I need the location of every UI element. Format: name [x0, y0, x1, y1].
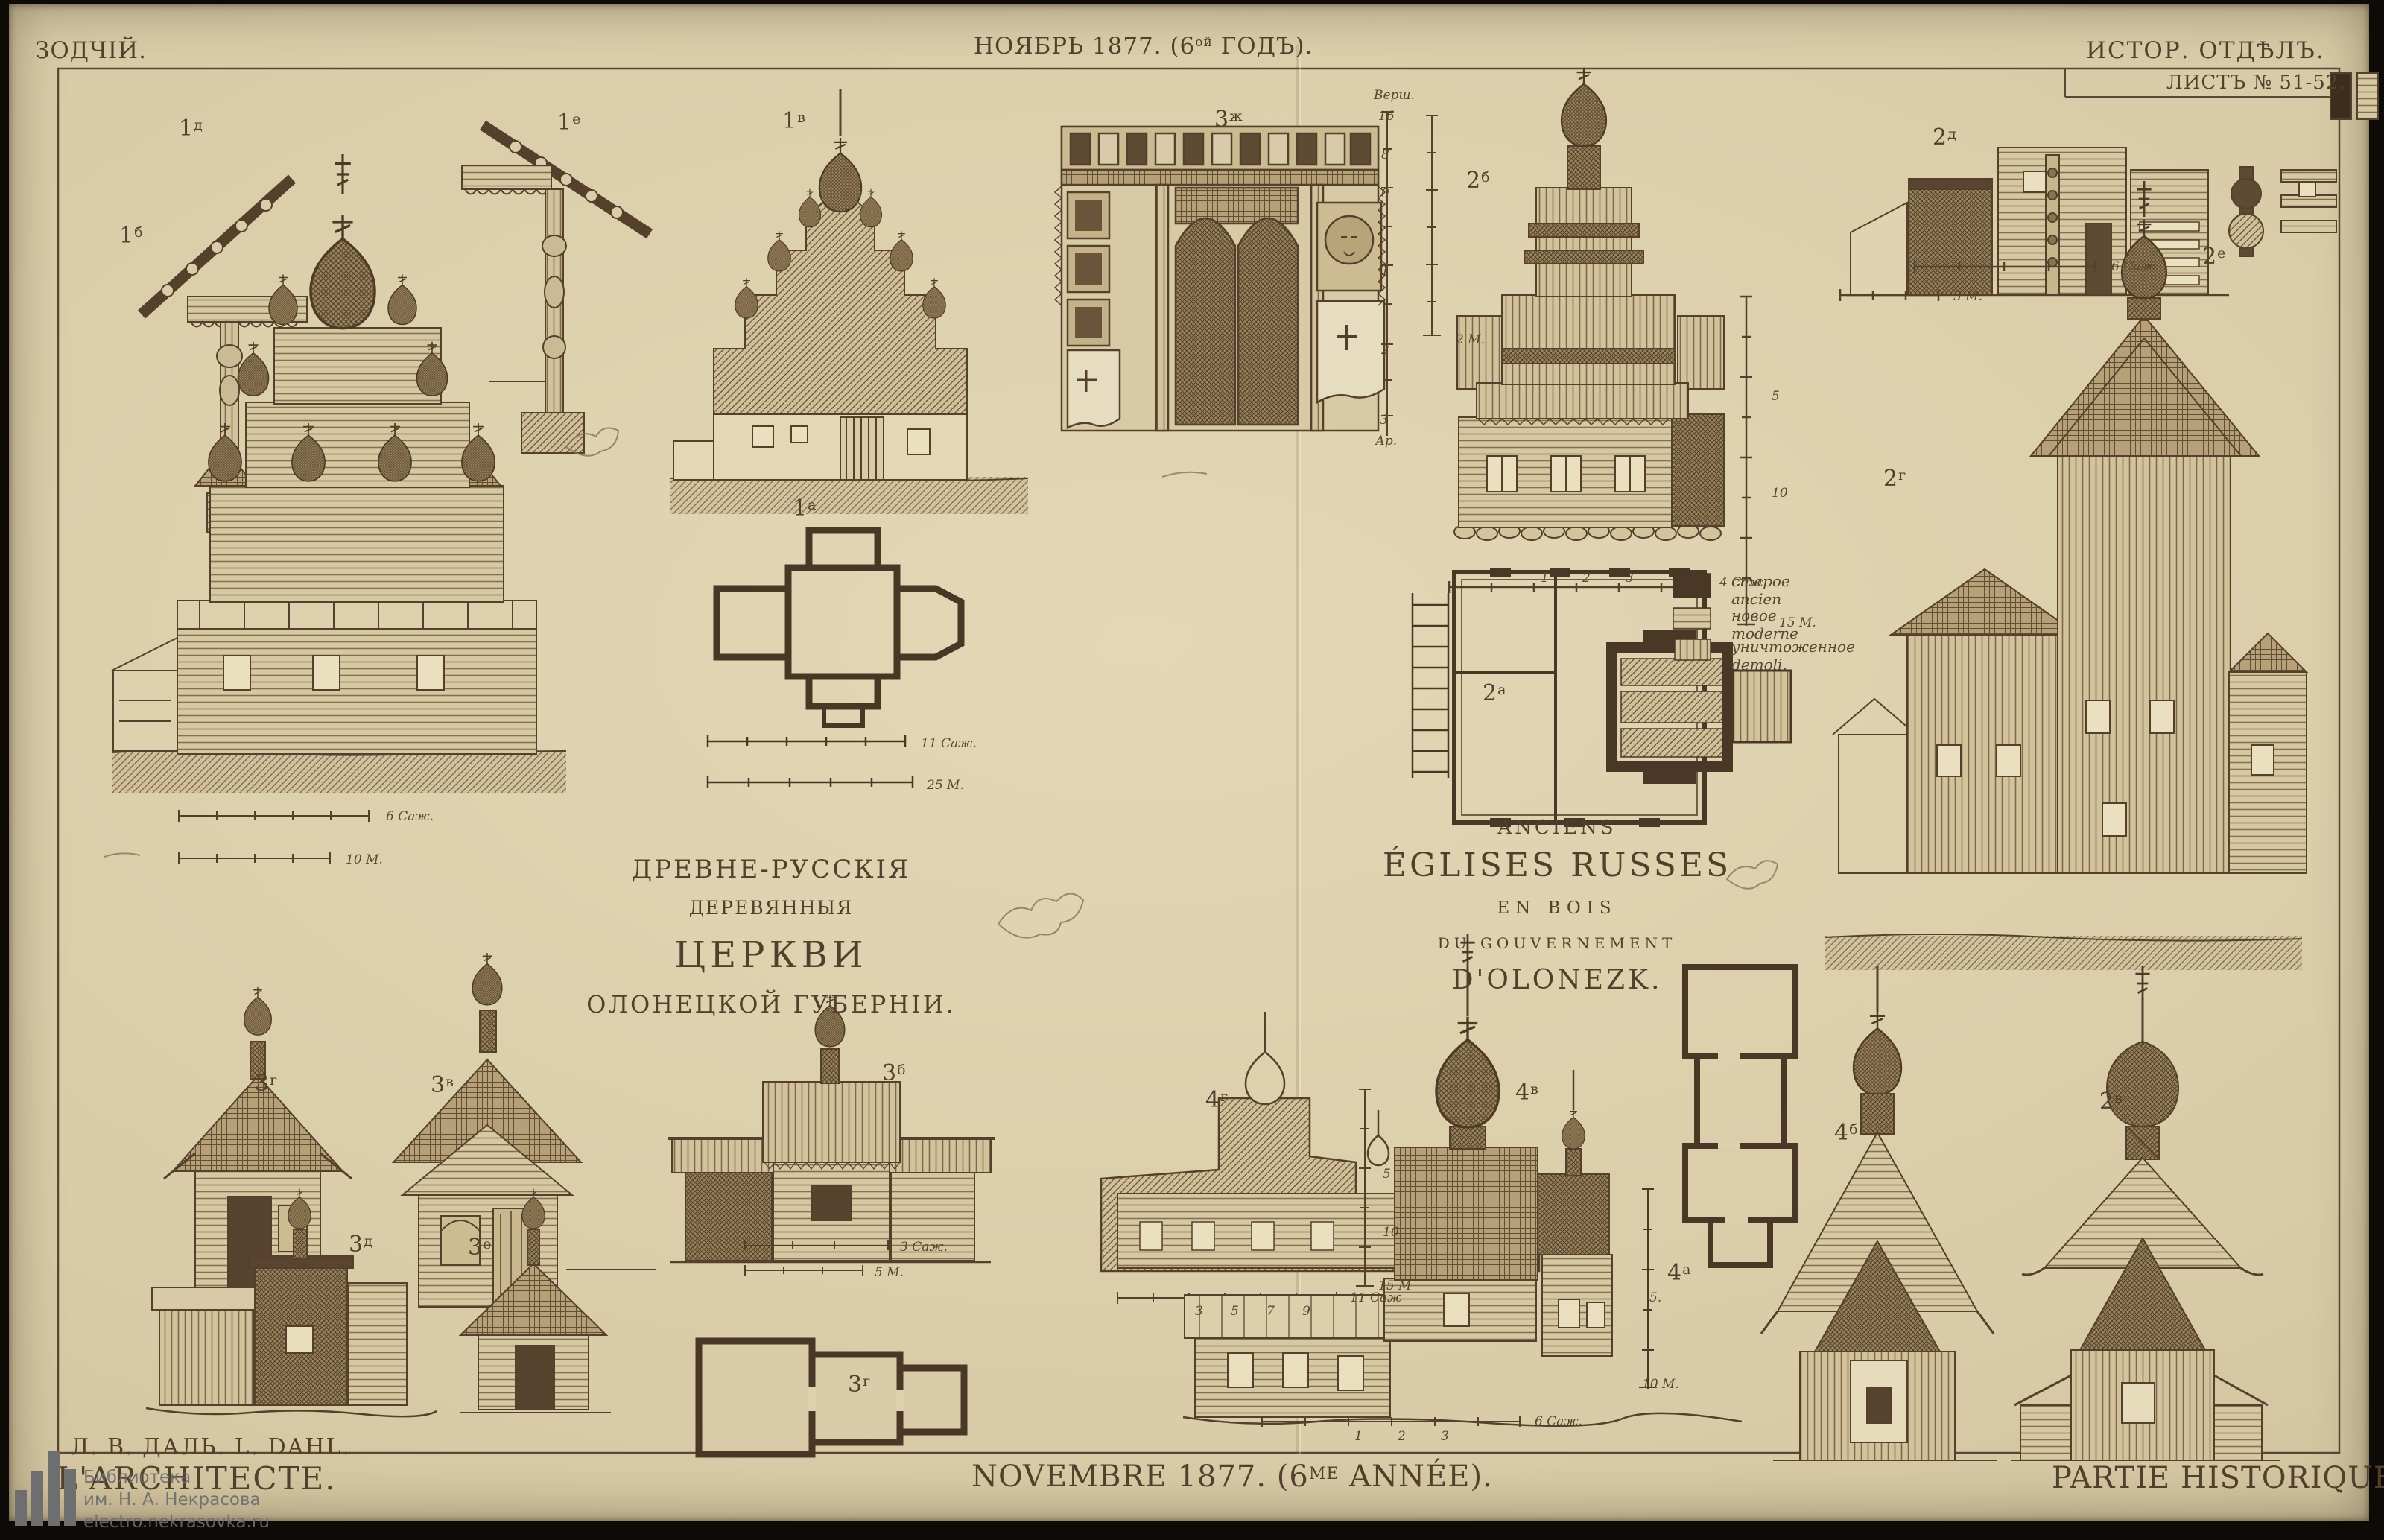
scale-label: 5 М. [1953, 291, 1982, 303]
masthead-title: ЗОДЧІЙ. [35, 39, 147, 63]
figure-label-num: 3 [848, 1372, 863, 1398]
scale-label: 2 М. [1456, 334, 1485, 346]
scale-label: 3 Саж. [900, 1241, 948, 1254]
legend-item-old-fr: ancien [1731, 592, 1781, 606]
figure-label-sup: б [897, 1062, 906, 1078]
figure-label-3e: 3е [468, 1237, 492, 1259]
plate-artwork [0, 0, 2384, 1540]
figure-label-sup: б [1481, 169, 1490, 186]
scale-bars-1b [179, 810, 369, 864]
scale-label: 15 М. [1779, 617, 1816, 630]
figure-label-num: 2 [2099, 1089, 2114, 1115]
fig-4a-plan [1639, 967, 1795, 1389]
scale-tick: 3 [1195, 1305, 1203, 1318]
figure-label-num: 4 [1205, 1087, 1220, 1113]
watermark-line1: Библиотека [83, 1469, 191, 1486]
footer-issue-fr: NOVEMBRE 1877. (6ME ANNÉE). [971, 1462, 1493, 1492]
figure-label-num: 4 [1515, 1080, 1530, 1106]
title-fr-line5: D'OLONEZK. [1452, 967, 1663, 994]
scale-label: 10 М. [1642, 1378, 1679, 1391]
figure-label-2d: 2д [1933, 127, 1957, 149]
scale-label: 5 [1772, 390, 1780, 403]
legend-item-new-ru: новое [1731, 608, 1777, 623]
figure-label-3b: 3б [882, 1062, 907, 1085]
figure-label-1b: 1б [119, 225, 144, 247]
figure-label-num: 2 [1883, 466, 1898, 492]
scale-tick: 1 [1354, 1430, 1363, 1443]
scale-tick: 5 [1231, 1305, 1239, 1318]
scale-tick: 3 [1626, 572, 1634, 585]
figure-label-sup: д [194, 117, 203, 133]
scale-label: 5. [1649, 1292, 1661, 1305]
title-fr-line2: ÉGLISES RUSSES [1383, 849, 1731, 882]
legend-item-demolished-fr: demoli. [1731, 657, 1787, 672]
figure-label-sup: в [1530, 1081, 1539, 1097]
figure-label-num: 2 [2202, 244, 2217, 270]
title-ru-line1: ДРЕВНЕ-РУССКІЯ [632, 857, 911, 882]
scale-label: 3 [1380, 414, 1388, 427]
scale-tick: 7 [1266, 1305, 1275, 1318]
scale-label: 16 [1378, 110, 1395, 123]
figure-label-sup: г [1898, 467, 1906, 484]
scale-label: Ар. [1375, 435, 1397, 448]
figure-label-num: 2 [1466, 168, 1481, 194]
figure-label-sup: е [572, 111, 581, 127]
figure-label-num: 3 [255, 1071, 270, 1097]
fig-2b-church-elevation [1449, 68, 1755, 626]
figure-label-num: 3 [1214, 107, 1229, 133]
scale-tick: 3 [1441, 1430, 1449, 1443]
scale-tick: 2 [1582, 572, 1591, 585]
title-ru-line4: ОЛОНЕЦКОЙ ГУБЕРНІИ. [586, 992, 956, 1016]
scale-label: 6 Саж. [1535, 1416, 1582, 1428]
figure-label-num: 4 [1667, 1260, 1682, 1286]
scale-label: 10 М. [346, 854, 383, 866]
plate-paper: ЗОДЧІЙ. НОЯБРЬ 1877. (6ой ГОДЪ). ИСТОР. … [9, 4, 2369, 1521]
figure-label-2v: 2в [2099, 1091, 2123, 1113]
figure-label-sup: г [270, 1072, 278, 1089]
fig-1v-church-section [670, 89, 1028, 514]
figure-label-3g: 3г [255, 1073, 278, 1095]
legend-item-demolished-ru: уничтоженное [1731, 639, 1855, 654]
scale-label: 11 Саж. [921, 738, 977, 750]
header-issue-sup: ой [1195, 35, 1213, 50]
figure-label-sup: д [1947, 126, 1957, 142]
figure-label-3zh: 3ж [1214, 109, 1243, 131]
scale-label: 10 [1772, 487, 1788, 500]
figure-label-num: 2 [1933, 124, 1947, 150]
figure-label-sup: а [1497, 682, 1506, 698]
figure-label-num: 4 [1834, 1120, 1849, 1146]
figure-label-sup: б [1849, 1121, 1858, 1138]
fig-3d-church-elevation [146, 1188, 437, 1416]
figure-label-sup: е [2217, 245, 2226, 262]
figure-label-4b: 4б [1834, 1122, 1859, 1144]
figure-label-sup: г [863, 1373, 871, 1390]
fig-1e-carved-post [462, 125, 650, 453]
scale-label: 15 М [1378, 1280, 1411, 1293]
scale-label: 5 М. [875, 1267, 904, 1279]
figure-label-1e: 1е [557, 112, 581, 134]
footer-issue-post: ANNÉE). [1339, 1460, 1492, 1494]
figure-label-num: 1 [119, 223, 134, 249]
figure-label-3g-plan: 3г [848, 1374, 871, 1396]
figure-label-2g: 2г [1883, 468, 1906, 490]
header-issue-pre: НОЯБРЬ 1877. (6 [974, 33, 1195, 60]
legend-swatches [1673, 574, 1711, 660]
scale-label: 25 М. [927, 779, 964, 792]
title-fr-line1: ANCIENS [1497, 818, 1616, 837]
figure-label-4a: 4а [1667, 1262, 1691, 1284]
scale-label: 0 [1381, 188, 1389, 200]
scale-tick: 1 [1541, 572, 1549, 585]
sheet-number: ЛИСТЪ № 51-52. [2166, 73, 2346, 92]
scale-label: 4 Саж. [1719, 577, 1767, 589]
scanned-plate-page: ЗОДЧІЙ. НОЯБРЬ 1877. (6ой ГОДЪ). ИСТОР. … [0, 0, 2384, 1540]
footer-issue-sup: ME [1309, 1465, 1340, 1483]
title-fr-line4: DU GOUVERNEMENT [1438, 936, 1677, 951]
scale-tick: 2 [1398, 1430, 1406, 1443]
figure-label-sup: ж [1229, 108, 1243, 124]
fig-2v-tower-elevation [2011, 966, 2280, 1460]
figure-label-3v: 3в [431, 1074, 454, 1097]
scale-label: 8 [1381, 149, 1389, 162]
figure-label-num: 3 [431, 1072, 446, 1098]
figure-label-4v: 4в [1515, 1082, 1539, 1104]
watermark-line2: им. Н. А. Некрасова [83, 1492, 261, 1509]
title-fr-line3: EN BOIS [1497, 900, 1617, 917]
scale-tick: 9 [1302, 1305, 1310, 1318]
title-ru-line3: ЦЕРКВИ [674, 937, 867, 973]
footer-issue-pre: NOVEMBRE 1877. (6 [971, 1460, 1309, 1494]
figure-label-sup: г [1220, 1089, 1229, 1105]
figure-label-1d: 1д [179, 118, 203, 140]
figure-label-num: 3 [349, 1232, 364, 1258]
figure-label-num: 1 [782, 108, 797, 134]
title-ru-line2: ДЕРЕВЯННЫЯ [689, 899, 854, 917]
header-issue-post: ГОДЪ). [1213, 33, 1313, 60]
figure-label-1a: 1а [793, 498, 817, 520]
figure-label-num: 1 [557, 110, 572, 136]
figure-label-sup: а [808, 497, 817, 513]
scale-label: 2 [1381, 344, 1389, 357]
fig-3b-chapel-elevation [668, 995, 995, 1276]
figure-label-sup: б [134, 224, 143, 241]
scale-label: 6 Саж. [386, 811, 434, 823]
figure-label-2a: 2а [1483, 682, 1506, 705]
scale-label: 6 Саж. [2111, 261, 2159, 273]
author-credit: Л. В. ДАЛЬ. L. DAHL. [70, 1436, 351, 1459]
scale-label: 1 [1381, 265, 1389, 278]
figure-label-sup: а [1682, 1261, 1691, 1278]
figure-label-2b: 2б [1466, 170, 1491, 192]
watermark-line3: electro.nekrasovka.ru [83, 1514, 270, 1531]
figure-label-num: 3 [882, 1060, 897, 1086]
figure-label-2e: 2е [2202, 246, 2226, 268]
figure-label-num: 1 [793, 495, 808, 522]
fig-2d-log-elevation [1840, 73, 2378, 301]
figure-label-4g: 4г [1205, 1089, 1229, 1112]
figure-label-3d: 3д [349, 1234, 373, 1256]
figure-label-num: 2 [1483, 680, 1497, 706]
scale-label: 11 Саж [1350, 1292, 1402, 1305]
figure-label-1v: 1в [782, 110, 806, 133]
fig-2g-church-elevation [1825, 181, 2307, 970]
figure-label-sup: в [797, 110, 806, 126]
fig-2e-joint-details [2229, 167, 2336, 256]
scale-label: 10 [1383, 1226, 1399, 1239]
scale-label: 5 [1383, 1168, 1391, 1181]
figure-label-sup: в [2114, 1090, 2123, 1106]
fig-1b-church-elevation [112, 154, 566, 793]
scale-label: Верш. [1374, 89, 1415, 102]
figure-label-num: 3 [468, 1235, 483, 1261]
header-section: ИСТОР. ОТДѢЛЪ. [2086, 39, 2325, 63]
header-issue: НОЯБРЬ 1877. (6ой ГОДЪ). [974, 35, 1313, 58]
library-logo-bars [15, 1426, 89, 1526]
fig-3g-plan [699, 1341, 964, 1454]
figure-label-sup: в [446, 1074, 454, 1090]
figure-label-sup: д [364, 1233, 373, 1249]
footer-section-fr: PARTIE HISTORIQUE. [2052, 1463, 2384, 1493]
figure-label-sup: е [483, 1236, 492, 1252]
figure-label-num: 1 [179, 115, 194, 142]
